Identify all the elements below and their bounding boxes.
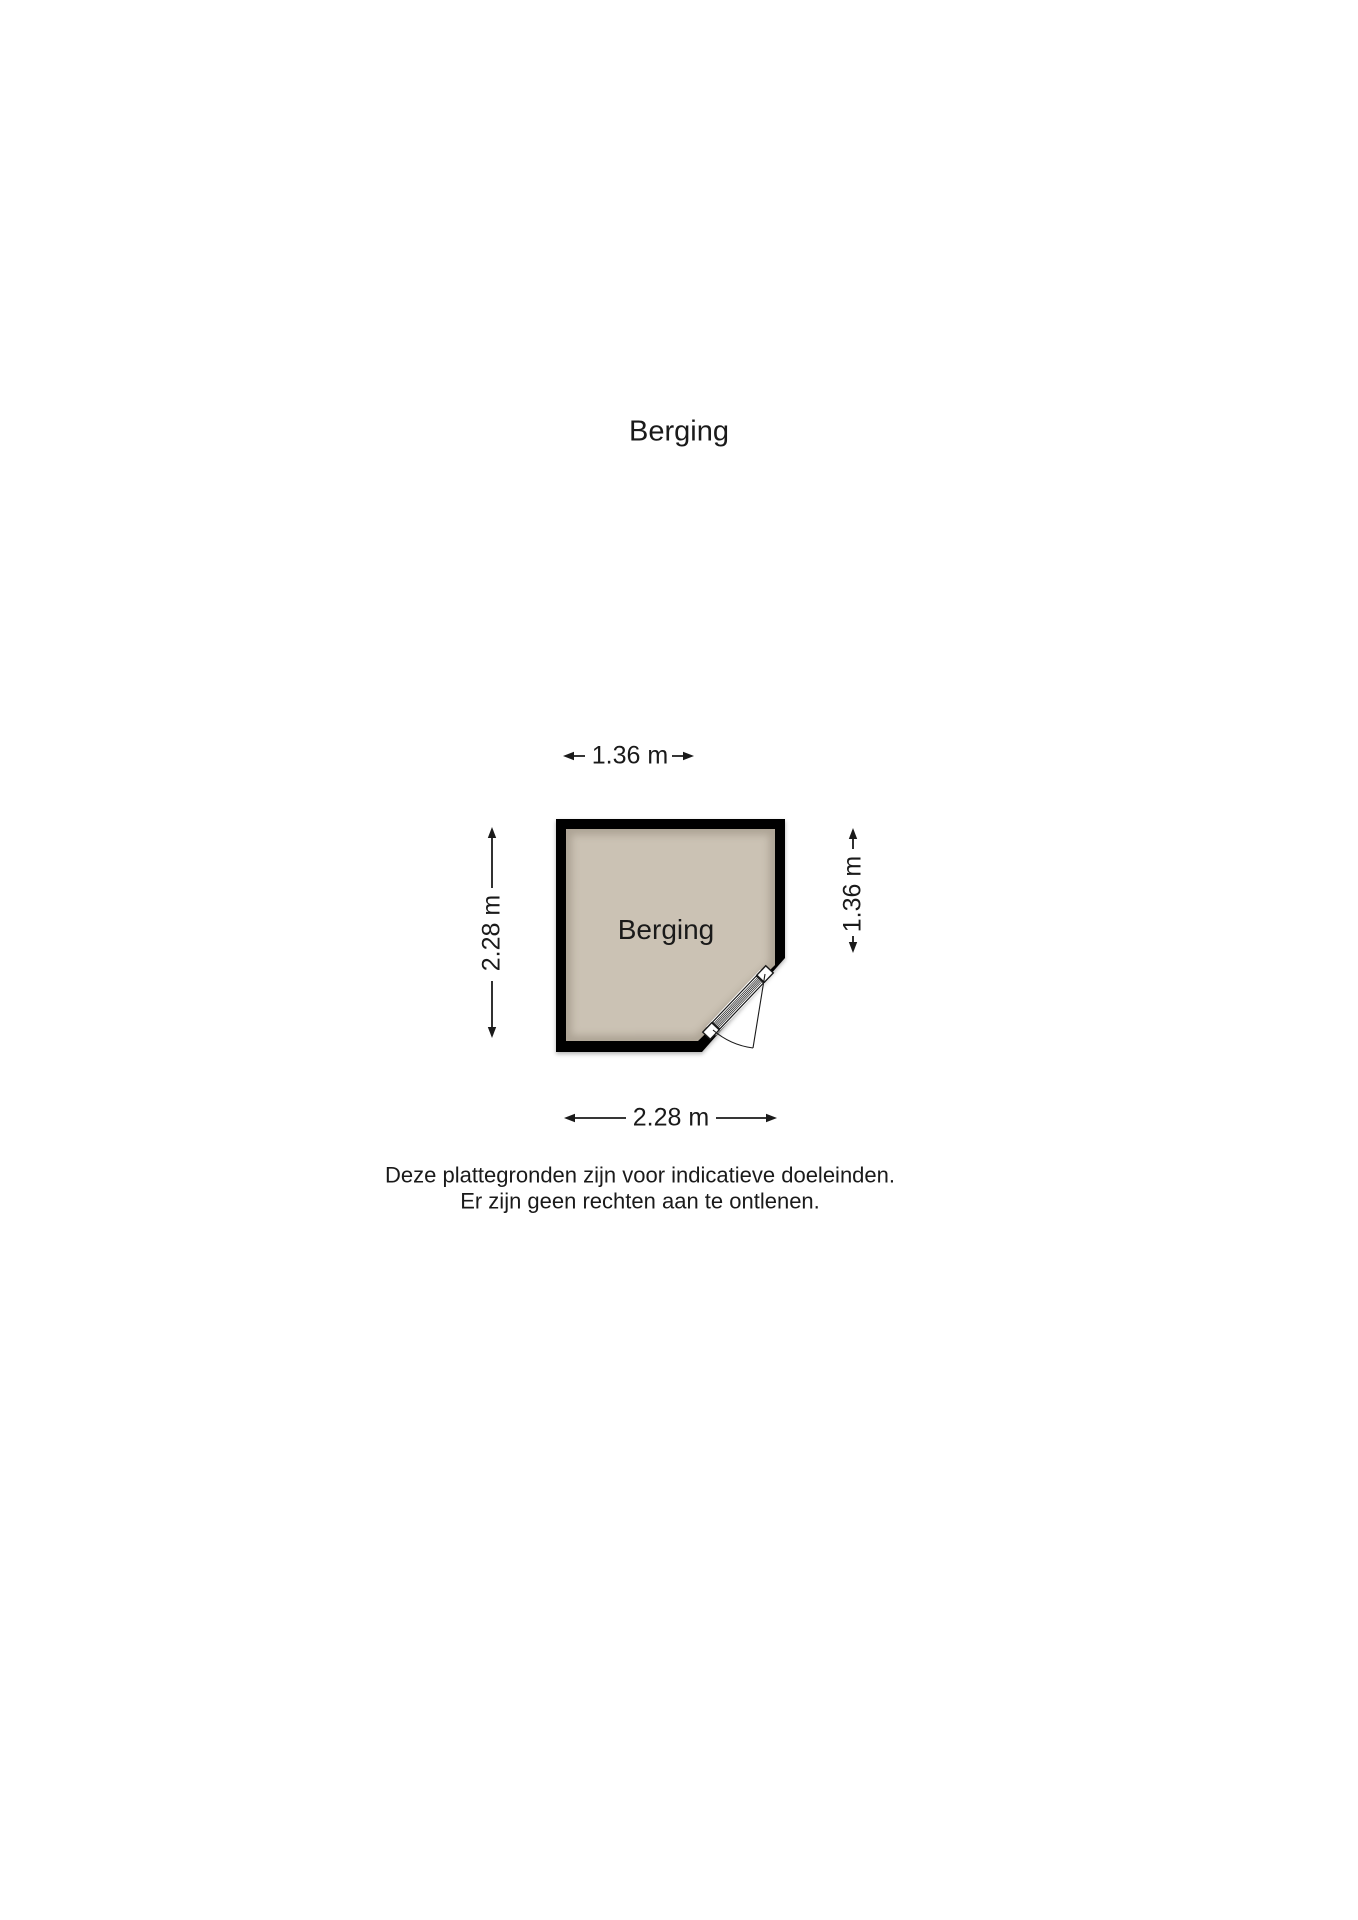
arrow-left-icon	[564, 1114, 575, 1122]
arrow-right-icon	[683, 752, 694, 760]
disclaimer-line-2: Er zijn geen rechten aan te ontlenen.	[385, 1189, 895, 1215]
arrow-down-icon	[849, 942, 857, 953]
arrow-up-icon	[488, 827, 496, 838]
floorplan-canvas	[0, 0, 1358, 1920]
arrow-down-icon	[488, 1027, 496, 1038]
arrow-up-icon	[849, 828, 857, 839]
dimension-left-label: 2.28 m	[478, 895, 507, 971]
room-label: Berging	[618, 914, 715, 946]
dimension-bottom-label: 2.28 m	[633, 1104, 709, 1133]
disclaimer-line-1: Deze plattegronden zijn voor indicatieve…	[385, 1163, 895, 1189]
dimension-right-label: 1.36 m	[839, 856, 868, 932]
dimension-top-label: 1.36 m	[592, 742, 668, 771]
page-title: Berging	[629, 416, 729, 449]
floorplan-page: Berging Berging 1.36 m 2.28 m 2.28 m 1.3…	[0, 0, 1358, 1920]
disclaimer: Deze plattegronden zijn voor indicatieve…	[385, 1163, 895, 1216]
arrow-left-icon	[563, 752, 574, 760]
arrow-right-icon	[766, 1114, 777, 1122]
